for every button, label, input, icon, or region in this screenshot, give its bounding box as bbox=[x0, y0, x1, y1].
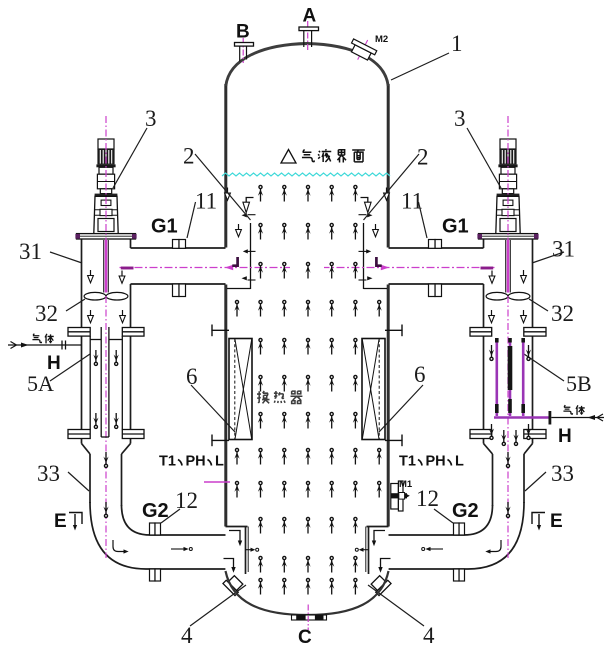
svg-text:33: 33 bbox=[551, 461, 574, 486]
svg-text:31: 31 bbox=[552, 237, 575, 262]
svg-text:2: 2 bbox=[183, 144, 195, 169]
svg-text:H: H bbox=[47, 353, 61, 374]
svg-text:33: 33 bbox=[37, 461, 60, 486]
svg-text:1: 1 bbox=[451, 31, 463, 56]
svg-text:5B: 5B bbox=[566, 371, 592, 396]
svg-text:4: 4 bbox=[181, 623, 193, 647]
svg-text:M2: M2 bbox=[375, 34, 388, 45]
svg-text:C: C bbox=[298, 627, 312, 647]
svg-text:32: 32 bbox=[35, 301, 58, 326]
svg-text:L: L bbox=[215, 454, 224, 470]
svg-text:A: A bbox=[303, 6, 317, 27]
svg-text:3: 3 bbox=[145, 106, 157, 131]
svg-text:3: 3 bbox=[454, 106, 466, 131]
svg-text:4: 4 bbox=[423, 623, 435, 647]
svg-text:6: 6 bbox=[186, 364, 198, 389]
svg-text:32: 32 bbox=[551, 301, 574, 326]
svg-text:E: E bbox=[550, 511, 563, 532]
svg-text:B: B bbox=[236, 22, 250, 43]
svg-text:G1: G1 bbox=[442, 216, 469, 238]
svg-text:PH: PH bbox=[426, 454, 446, 470]
svg-text:PH: PH bbox=[186, 454, 206, 470]
svg-text:11: 11 bbox=[401, 189, 423, 214]
svg-text:G2: G2 bbox=[452, 500, 479, 522]
svg-text:6: 6 bbox=[414, 362, 426, 387]
svg-text:H: H bbox=[558, 426, 572, 447]
svg-text:5A: 5A bbox=[27, 371, 54, 396]
svg-text:M1: M1 bbox=[399, 479, 413, 490]
svg-text:2: 2 bbox=[417, 145, 429, 170]
svg-text:L: L bbox=[455, 454, 464, 470]
svg-text:G1: G1 bbox=[151, 216, 178, 238]
svg-text:E: E bbox=[54, 511, 67, 532]
svg-text:T1: T1 bbox=[399, 454, 416, 470]
svg-text:12: 12 bbox=[175, 488, 198, 513]
svg-text:G2: G2 bbox=[142, 500, 169, 522]
svg-text:11: 11 bbox=[195, 189, 217, 214]
svg-text:T1: T1 bbox=[159, 454, 176, 470]
svg-text:31: 31 bbox=[19, 239, 42, 264]
svg-text:12: 12 bbox=[416, 486, 439, 511]
